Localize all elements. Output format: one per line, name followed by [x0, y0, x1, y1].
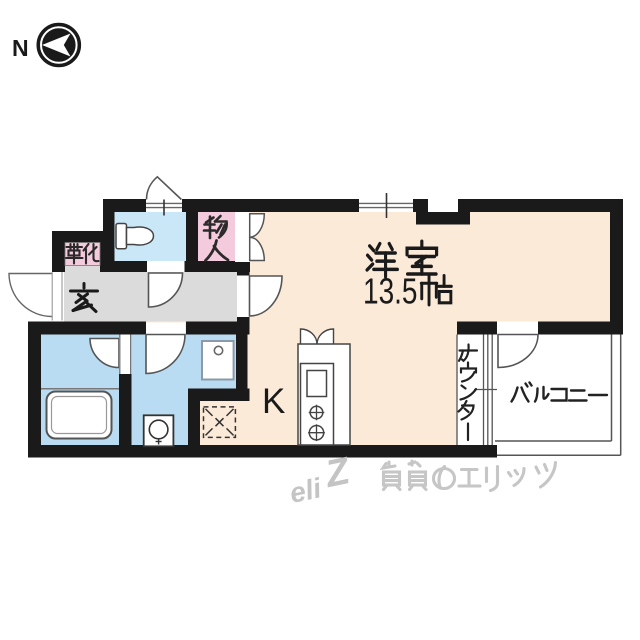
svg-text:eli: eli — [287, 472, 325, 509]
svg-text:K: K — [262, 382, 285, 421]
svg-text:N: N — [12, 35, 29, 61]
svg-text:13.5: 13.5 — [363, 271, 418, 312]
